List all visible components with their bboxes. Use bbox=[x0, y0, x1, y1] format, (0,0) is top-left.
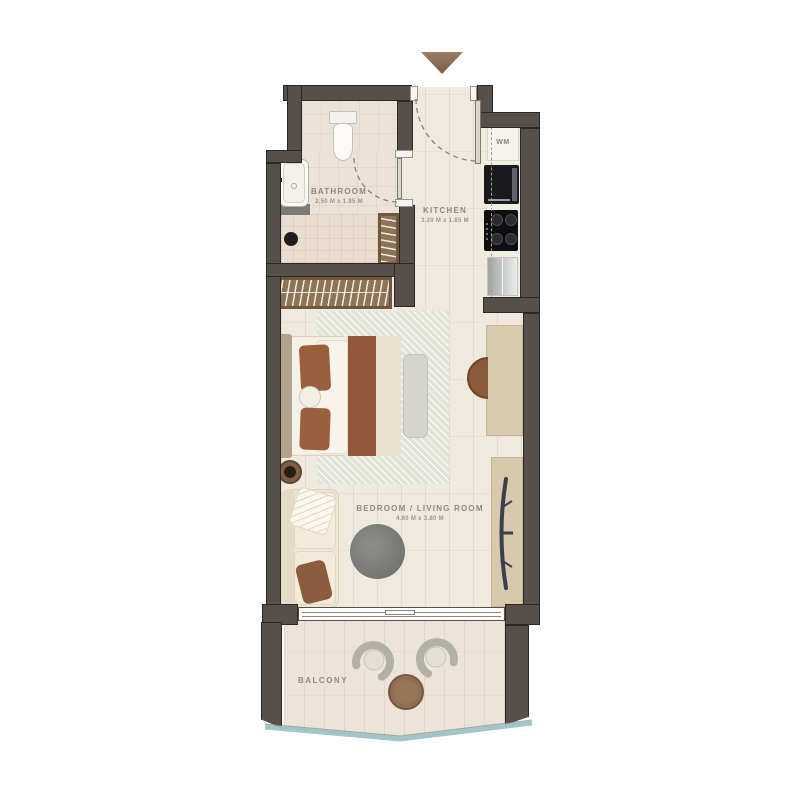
balcony-sliding-door bbox=[298, 607, 505, 621]
wall bbox=[523, 313, 540, 608]
entry-door-jamb bbox=[410, 86, 418, 101]
bathroom-dims: 2.50 M x 1.85 M bbox=[289, 199, 389, 206]
balcony-label: BALCONY bbox=[283, 677, 363, 686]
burner bbox=[505, 233, 517, 245]
oven-panel bbox=[512, 168, 517, 201]
burner bbox=[505, 214, 517, 226]
bedroom-label: BEDROOM / LIVING ROOM 4.60 M x 3.80 M bbox=[335, 505, 505, 522]
floor-plan: WM bbox=[0, 0, 800, 800]
knob bbox=[486, 228, 488, 230]
kitchen-label: KITCHEN 3.20 M x 1.85 M bbox=[395, 207, 495, 224]
entry-door-jamb bbox=[470, 86, 477, 101]
oven bbox=[484, 165, 519, 204]
window-line bbox=[302, 612, 390, 613]
kitchen-name: KITCHEN bbox=[395, 207, 495, 216]
bathroom-label: BATHROOM 2.50 M x 1.85 M bbox=[289, 188, 389, 205]
burner bbox=[491, 233, 503, 245]
entry-door-leaf bbox=[475, 100, 481, 164]
bed-pillow-rust bbox=[299, 407, 330, 450]
bathroom-door-leaf bbox=[397, 158, 402, 199]
wall bbox=[266, 163, 281, 622]
knob bbox=[486, 238, 488, 240]
bed-bench bbox=[403, 354, 428, 438]
round-rug bbox=[350, 524, 405, 579]
entry-arrow-icon bbox=[421, 52, 463, 74]
potted-plant bbox=[284, 466, 296, 478]
bathroom-wall bbox=[397, 101, 413, 152]
wall bbox=[287, 85, 302, 152]
bathroom-door-jamb bbox=[395, 199, 413, 207]
window-line bbox=[302, 616, 501, 617]
kitchen-dims: 3.20 M x 1.85 M bbox=[395, 218, 495, 225]
wall bbox=[520, 128, 540, 300]
bathroom-name: BATHROOM bbox=[289, 188, 389, 197]
wall bbox=[262, 604, 298, 625]
knob bbox=[486, 233, 488, 235]
washing-machine-label: WM bbox=[488, 139, 518, 146]
wall bbox=[266, 263, 415, 277]
tv-console bbox=[491, 457, 523, 607]
wall bbox=[394, 263, 415, 307]
balcony-wall-right bbox=[505, 625, 529, 727]
bathroom-door-jamb bbox=[395, 150, 413, 158]
bedroom-dims: 4.60 M x 3.80 M bbox=[335, 516, 505, 523]
wardrobe bbox=[272, 277, 392, 309]
bed-throw-blanket bbox=[348, 336, 376, 456]
balcony-wall-left bbox=[261, 622, 282, 728]
wall bbox=[283, 85, 412, 101]
window-line bbox=[415, 612, 501, 613]
wardrobe-rail bbox=[278, 292, 386, 293]
wall bbox=[266, 150, 302, 163]
desk bbox=[486, 325, 523, 436]
outside-mask bbox=[493, 40, 548, 112]
bedroom-name: BEDROOM / LIVING ROOM bbox=[335, 505, 505, 514]
toilet-bowl bbox=[333, 123, 353, 161]
sink-divider bbox=[502, 258, 503, 295]
balcony-name: BALCONY bbox=[283, 677, 363, 686]
wall bbox=[477, 112, 540, 128]
wall bbox=[483, 297, 540, 313]
wall bbox=[505, 604, 540, 625]
bed-pillow-rust bbox=[299, 344, 331, 392]
bedside-stool bbox=[299, 386, 321, 408]
window-step bbox=[385, 610, 415, 615]
shower-drain bbox=[284, 232, 298, 246]
